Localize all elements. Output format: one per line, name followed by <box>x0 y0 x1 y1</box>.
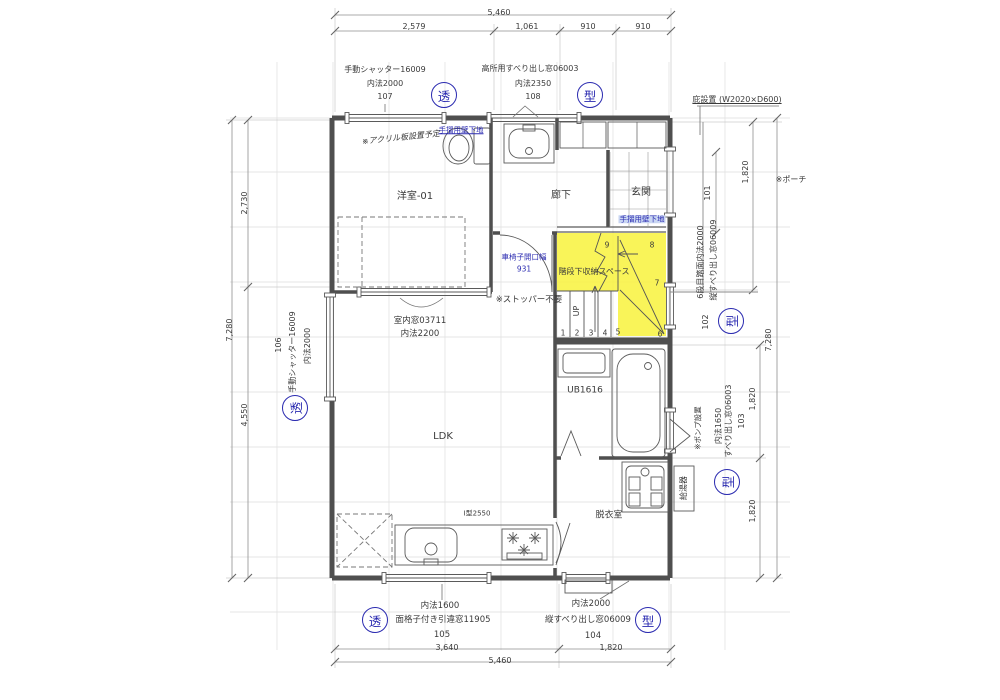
dressing-window-name: 縦すべり出し窓06009 <box>545 616 631 625</box>
glass-type-circle-top-right: 型 <box>577 82 603 108</box>
room-label-hallway: 廊下 <box>551 191 571 201</box>
kitchen <box>395 525 553 565</box>
washing-machine <box>622 462 668 512</box>
stairs-window-name: 縦すべり出し窓06009 <box>710 220 718 301</box>
grid-lines <box>230 62 790 650</box>
dim-top-seg-2: 1,061 <box>516 23 539 31</box>
dim-top-seg-4: 910 <box>635 23 650 31</box>
window-left-name: 手動シャッター16009 <box>289 311 297 392</box>
dim-left-seg-1: 2,730 <box>241 192 249 215</box>
floor-plan-page: 5,460 2,579 1,061 910 910 手動シャッター16009 内… <box>0 0 1000 700</box>
room-label-bedroom: 洋室-01 <box>397 192 433 202</box>
stair-step-5: 5 <box>616 328 621 336</box>
dim-bottom-seg-1: 3,640 <box>436 644 459 652</box>
stair-step-3: 3 <box>589 329 594 337</box>
refrigerator-space <box>337 514 392 567</box>
wheelchair-opening-width: 931 <box>517 265 531 273</box>
wheelchair-opening-note: 車椅子開口幅 <box>502 253 547 261</box>
dim-right-porch: 1,820 <box>742 161 750 184</box>
room-label-entrance: 玄関 <box>631 188 651 198</box>
kitchen-window-name: 面格子付き引違窓11905 <box>395 616 490 625</box>
stair-step-2: 2 <box>575 329 580 337</box>
room-label-bath: UB1616 <box>567 387 603 396</box>
leader-lines <box>385 104 779 600</box>
pump-note: ※ポンプ設置 <box>694 406 702 450</box>
glass-type-circle-top-left: 透 <box>431 82 457 108</box>
stove-burner-icons <box>507 532 541 556</box>
kitchen-type-label: I型2550 <box>464 511 491 518</box>
entrance-door-number: 101 <box>704 185 712 200</box>
window-left-size: 内法2000 <box>304 328 312 364</box>
kitchen-window-size: 内法1600 <box>421 602 460 611</box>
window-top-left-number: 107 <box>377 93 392 101</box>
dim-bottom-total: 5,460 <box>489 657 512 665</box>
interior-walls <box>332 118 668 578</box>
dim-right-bottom: 1,820 <box>749 500 757 523</box>
dim-right-total: 7,280 <box>765 329 773 352</box>
glass-type-circle-left: 透 <box>282 395 308 421</box>
stair-step-9: 9 <box>605 241 610 249</box>
stair-step-1: 1 <box>561 329 566 337</box>
window-top-right-number: 108 <box>525 93 540 101</box>
bathroom <box>558 349 665 457</box>
dim-left-seg-2: 4,550 <box>241 404 249 427</box>
bath-window-size: 内法1650 <box>715 408 723 444</box>
dim-top-total: 5,460 <box>488 9 511 17</box>
stairs-up-label: UP <box>573 306 581 317</box>
stair-step-6: 6 <box>658 330 663 338</box>
window-left-number: 106 <box>275 337 283 352</box>
dressing-window-number: 104 <box>585 632 601 641</box>
porch-note: ※ポーチ <box>776 176 807 184</box>
handrail-note-toilet: 手摺用壁下地 <box>439 126 484 134</box>
washbasin <box>504 124 554 163</box>
window-top-right-size: 内法2350 <box>515 80 551 88</box>
stair-step-8: 8 <box>650 241 655 249</box>
kitchen-window-number: 105 <box>434 631 450 640</box>
bath-window-name: すべり出し窓06003 <box>725 385 733 458</box>
room-label-dressing: 脱衣室 <box>595 512 622 521</box>
window-top-left-size: 内法2000 <box>367 80 403 88</box>
dim-top-seg-1: 2,579 <box>403 23 426 31</box>
window-top-left-name: 手動シャッター16009 <box>344 66 425 74</box>
window-symbols <box>325 113 676 584</box>
dressing-window-size: 内法2000 <box>572 600 611 609</box>
dim-right-bath: 1,820 <box>749 388 757 411</box>
dim-top-seg-3: 910 <box>580 23 595 31</box>
glass-type-circle-dressing: 型 <box>635 607 661 633</box>
floor-plan-drawing <box>0 0 1000 700</box>
stopper-note: ※ストッパー不要 <box>496 296 563 305</box>
bed <box>338 217 465 287</box>
stairs-storage-label: 階段下収納スペース <box>558 268 629 276</box>
glass-type-circle-bath: 型 <box>714 469 740 495</box>
canopy-note: 庇設置 (W2020×D600) <box>692 96 781 104</box>
interior-window-size: 内法2200 <box>401 330 440 339</box>
glass-type-circle-stairs: 型 <box>718 308 744 334</box>
bath-window-number: 103 <box>738 413 746 428</box>
stair-step-4: 4 <box>603 329 608 337</box>
handrail-note-entrance: 手摺用壁下地 <box>619 215 666 223</box>
stairs-window-number: 102 <box>702 314 710 329</box>
water-heater-label: 給湯器 <box>680 476 688 500</box>
dim-bottom-seg-2: 1,820 <box>600 644 623 652</box>
stairs-tread-note: 6段目踏面内法2000 <box>697 225 705 298</box>
dim-left-total: 7,280 <box>226 319 234 342</box>
room-label-ldk: LDK <box>433 432 453 442</box>
window-top-right-name: 高所用すべり出し窓06003 <box>482 65 579 73</box>
stair-step-7: 7 <box>655 279 660 287</box>
glass-type-circle-kitchen: 透 <box>362 607 388 633</box>
interior-window-name: 室内窓03711 <box>394 317 447 326</box>
